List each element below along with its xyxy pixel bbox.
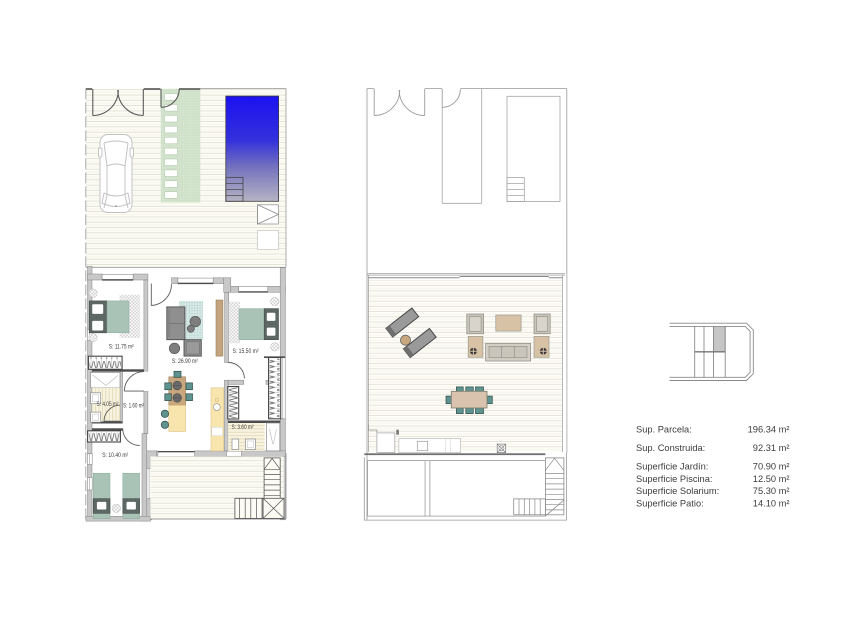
svg-text:92.31 m²: 92.31 m² [753,443,790,453]
svg-text:S: 26.90 m²: S: 26.90 m² [172,358,198,365]
svg-text:75.30 m²: 75.30 m² [753,486,790,496]
svg-text:196.34 m²: 196.34 m² [748,424,790,434]
svg-text:S: 1.60 m²: S: 1.60 m² [123,402,144,409]
svg-text:Superficie Solarium:: Superficie Solarium: [636,486,719,496]
svg-text:S: 3.60 m²: S: 3.60 m² [232,424,254,431]
svg-text:S: 10.40 m²: S: 10.40 m² [102,452,128,459]
svg-text:Sup. Parcela:: Sup. Parcela: [636,424,692,434]
svg-text:S: 15.50 m²: S: 15.50 m² [233,348,259,355]
svg-text:S: 11.75 m²: S: 11.75 m² [109,344,134,351]
svg-text:Superficie Piscina:: Superficie Piscina: [636,474,712,484]
svg-text:Superficie Patio:: Superficie Patio: [636,498,704,508]
svg-text:S: 4.05 m²: S: 4.05 m² [97,401,119,408]
svg-text:Superficie Jardín:: Superficie Jardín: [636,462,708,472]
svg-text:12.50 m²: 12.50 m² [753,474,790,484]
svg-text:70.90 m²: 70.90 m² [753,462,790,472]
svg-text:14.10 m²: 14.10 m² [753,498,790,508]
svg-text:Sup. Construida:: Sup. Construida: [636,443,705,453]
